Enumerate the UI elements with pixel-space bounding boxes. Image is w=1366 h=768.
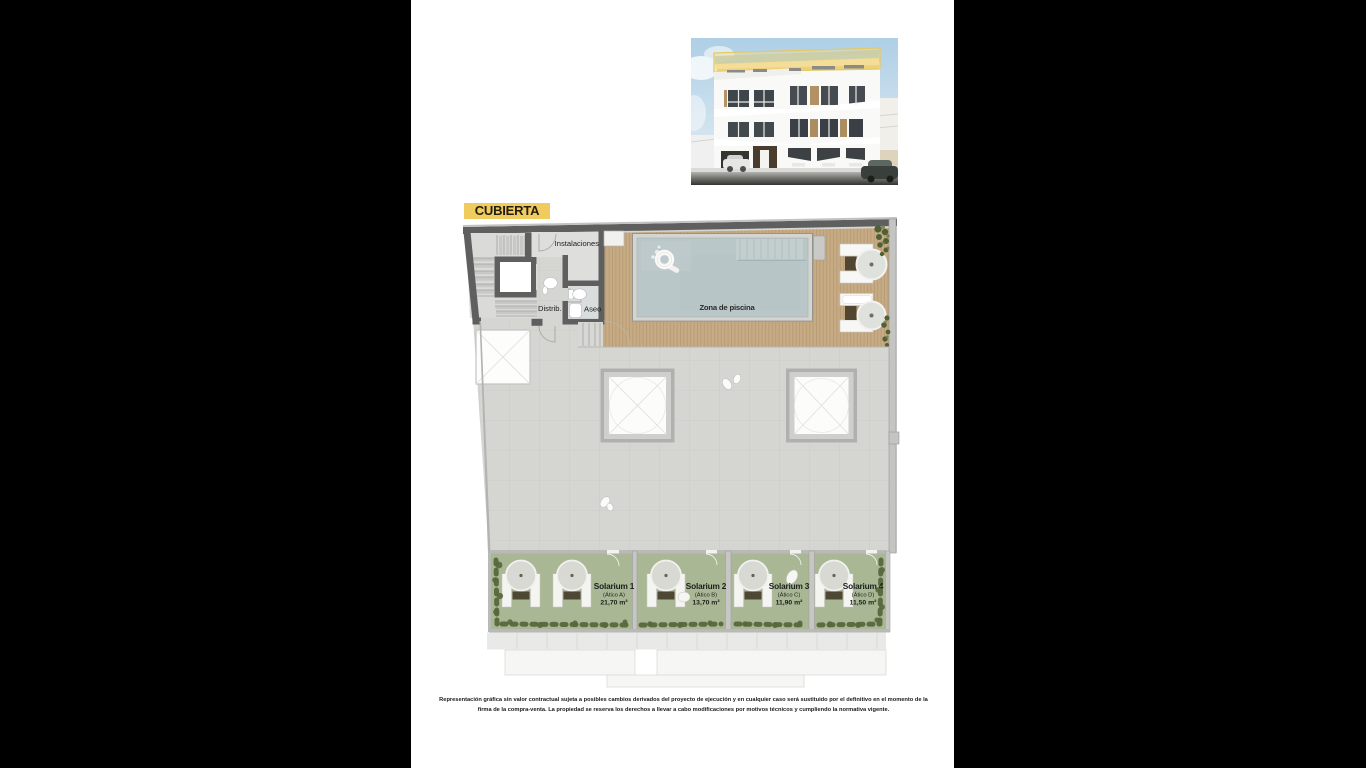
svg-text:(Ático D): (Ático D): [852, 592, 875, 599]
svg-text:Aseo: Aseo: [584, 305, 601, 314]
svg-text:(Ático B): (Ático B): [695, 592, 717, 599]
svg-text:Distrib.: Distrib.: [538, 304, 562, 313]
svg-text:13,70 m²: 13,70 m²: [692, 600, 720, 607]
svg-text:Solarium 2: Solarium 2: [686, 581, 727, 591]
svg-text:Solarium 3: Solarium 3: [769, 581, 810, 591]
svg-text:(Ático C): (Ático C): [778, 592, 801, 599]
svg-text:Zona de piscina: Zona de piscina: [699, 303, 755, 312]
svg-text:11,90 m²: 11,90 m²: [776, 600, 804, 607]
svg-text:11,50 m²: 11,50 m²: [850, 600, 878, 607]
svg-text:21,70 m²: 21,70 m²: [600, 600, 628, 607]
svg-text:Solarium 1: Solarium 1: [594, 581, 635, 591]
svg-text:Instalaciones: Instalaciones: [555, 239, 600, 248]
svg-text:(Ático A): (Ático A): [603, 592, 625, 599]
svg-text:Solarium 4: Solarium 4: [843, 581, 884, 591]
